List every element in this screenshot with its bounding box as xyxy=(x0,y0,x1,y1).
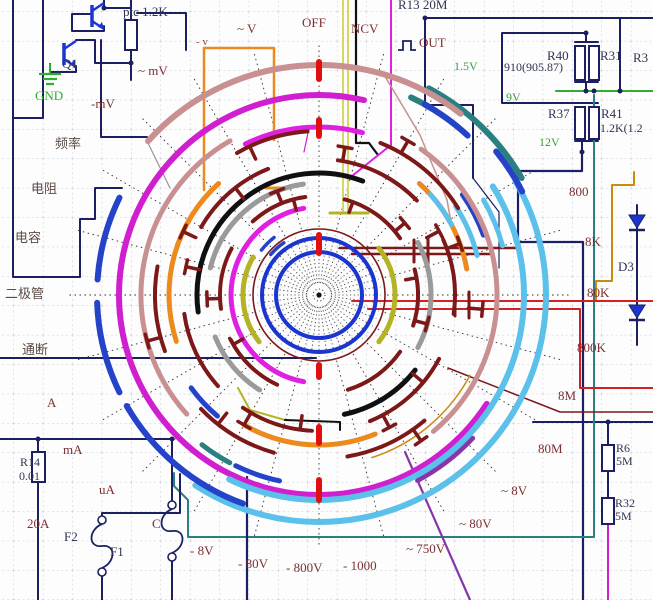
label-ptc: ptc 1.2K xyxy=(123,4,168,19)
r32-resistor xyxy=(602,498,614,524)
contact-tab-cap xyxy=(415,271,417,285)
schematic-canvas: ptc 1.2K- v~ VOFFNCVOUTR13 20M1.5V910(90… xyxy=(0,0,653,600)
label-ac750v: ~ 750V xyxy=(406,541,446,556)
junction-dot xyxy=(606,420,611,425)
r6-resistor xyxy=(602,445,614,471)
hub-dot xyxy=(316,292,321,297)
label-dcmv: -mV xyxy=(91,96,115,111)
label-r32: R32 xyxy=(615,496,635,510)
label-ac8v: ~ 8V xyxy=(501,483,528,498)
label-9v: 9V xyxy=(506,90,521,104)
label-800: 800 xyxy=(569,184,589,199)
label-r3x: R3 xyxy=(633,50,648,65)
label-800k: 800K xyxy=(577,340,607,355)
label-r32-value: 5M xyxy=(615,509,632,523)
ptc-resistor xyxy=(125,20,137,50)
junction-dot xyxy=(170,437,175,442)
label-ac80v: ~ 80V xyxy=(459,516,492,531)
junction-dot xyxy=(580,150,585,155)
contact-tab-cap xyxy=(293,429,307,431)
label-ncv: NCV xyxy=(351,21,379,36)
label-20a: 20A xyxy=(27,516,50,531)
label-ma: mA xyxy=(63,442,83,457)
f1-fuse-terminal xyxy=(98,568,106,576)
r40-resistor xyxy=(575,46,585,80)
contact-tab xyxy=(343,147,345,161)
label-amp: A xyxy=(47,395,57,410)
label-r40: R40 xyxy=(547,48,569,63)
label-continuity: 通断 xyxy=(22,342,48,357)
junction-dot xyxy=(584,31,589,36)
label-acmv: ~ mV xyxy=(138,63,168,78)
label-8m: 8M xyxy=(558,388,577,403)
label-r31: R31 xyxy=(600,48,622,63)
rotary-switch-schematic: ptc 1.2K- v~ VOFFNCVOUTR13 20M1.5V910(90… xyxy=(0,0,653,600)
label-dc1000: - 1000 xyxy=(343,558,377,573)
contact-tab xyxy=(300,416,302,430)
label-r6: R6 xyxy=(616,441,630,455)
label-80m: 80M xyxy=(538,441,563,456)
junction-dot xyxy=(592,89,597,94)
r41-resistor xyxy=(589,107,599,139)
label-dc80v: - 80V xyxy=(238,556,269,571)
r37-resistor xyxy=(575,107,585,139)
contact-tab-cap xyxy=(338,146,352,148)
junction-dot xyxy=(36,437,41,442)
junction-dot xyxy=(129,61,134,66)
label-dc800v: - 800V xyxy=(286,560,323,575)
label-r13: R13 20M xyxy=(398,0,448,12)
label-1v5: 1.5V xyxy=(454,59,478,73)
f2-fuse-terminal xyxy=(168,501,176,509)
label-f1: F1 xyxy=(110,544,124,559)
r31-resistor xyxy=(589,46,599,80)
junction-dot xyxy=(584,89,589,94)
contact-tab-cap xyxy=(482,302,483,316)
junction-dot xyxy=(102,6,107,11)
label-12v: 12V xyxy=(539,135,560,149)
label-out: OUT xyxy=(419,35,446,50)
label-gnd: GND xyxy=(35,88,63,103)
label-f2: F2 xyxy=(64,529,78,544)
label-80k: 80K xyxy=(587,285,610,300)
label-frequency: 频率 xyxy=(55,136,81,151)
label-8k: 8K xyxy=(585,234,602,249)
label-capacitance: 电容 xyxy=(15,230,41,245)
label-r37: R37 xyxy=(548,106,570,121)
label-resistance: 电阻 xyxy=(31,181,57,196)
label-cap-c: C xyxy=(152,516,161,531)
junction-dot xyxy=(618,89,623,94)
label-r14-value: 0.01 xyxy=(19,469,40,483)
label-r14: R14 xyxy=(20,455,40,469)
label-r41: R41 xyxy=(601,106,623,121)
label-dc-v-small: - v xyxy=(196,36,208,48)
label-r6-value: 5M xyxy=(616,454,633,468)
f1-fuse-terminal xyxy=(98,516,106,524)
label-d3: D3 xyxy=(618,259,634,274)
contact-tab xyxy=(468,308,482,309)
label-ac-v: ~ V xyxy=(237,21,257,36)
f2-fuse-terminal xyxy=(168,553,176,561)
label-ua: uA xyxy=(99,482,116,497)
label-off: OFF xyxy=(302,15,326,30)
label-diode: 二极管 xyxy=(5,286,44,301)
label-dc8v: - 8V xyxy=(190,543,214,558)
label-q1: Q1 xyxy=(62,56,78,71)
junction-dot xyxy=(423,16,428,21)
label-r41-value: 1.2K(1.2 xyxy=(600,121,643,135)
